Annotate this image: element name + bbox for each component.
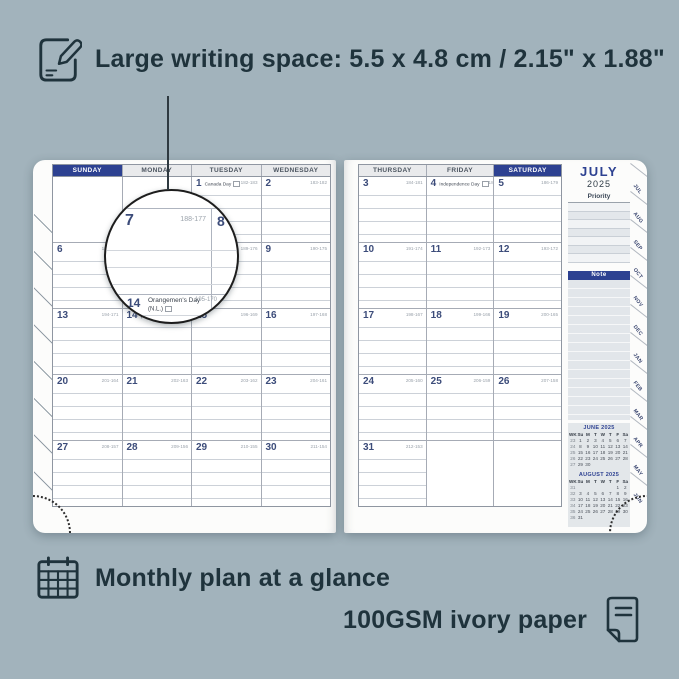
- paper-text: 100GSM ivory paper: [343, 606, 587, 635]
- day-cell-18: 18199-166: [427, 309, 495, 374]
- day-number: 27: [57, 443, 68, 453]
- day-of-year-annotation: 189-176: [241, 246, 258, 251]
- mini-calendar-title: AUGUST 2025: [569, 472, 629, 478]
- priority-line: [568, 229, 630, 238]
- mag-day-number: 7: [125, 212, 134, 230]
- month-tab-apr: APR: [632, 426, 647, 454]
- priority-line: [568, 254, 630, 263]
- week-row: 31212-153: [359, 441, 561, 506]
- day-number: 29: [196, 443, 207, 453]
- priority-line: [568, 220, 630, 229]
- monthly-plan-annotation: Monthly plan at a glance: [36, 556, 390, 600]
- day-cell-21: 21202-163: [123, 375, 193, 440]
- weekday-header-row: SUNDAYMONDAYTUESDAYWEDNESDAY: [53, 165, 330, 177]
- mag-cell-border: [106, 208, 237, 209]
- day-of-year-annotation: 209-156: [171, 444, 188, 449]
- day-of-year-annotation: 191-174: [406, 246, 423, 251]
- empty-day-cell: [427, 441, 495, 506]
- day-cell-23: 23204-161: [262, 375, 331, 440]
- calendar-grid-icon: [36, 556, 80, 600]
- day-cell-3: 3184-181: [359, 177, 427, 242]
- day-cell-16: 16197-168: [262, 309, 331, 374]
- priority-line: [568, 237, 630, 246]
- day-cell-4: 4Independence Day185-180: [427, 177, 495, 242]
- day-number: 21: [127, 377, 138, 387]
- day-number: 22: [196, 377, 207, 387]
- month-tab-jul: JUL: [632, 173, 647, 201]
- day-number: 3: [363, 179, 369, 189]
- mag-day-annotation: 188-177: [158, 216, 206, 223]
- day-number: 5: [498, 179, 504, 189]
- day-cell-13: 13194-171: [53, 309, 123, 374]
- week-row: 27208-15728209-15629210-15530211-154: [53, 441, 330, 506]
- day-number: 23: [266, 377, 277, 387]
- mini-day: [614, 462, 621, 468]
- day-number: 19: [498, 311, 509, 321]
- day-of-year-annotation: 193-172: [541, 246, 558, 251]
- mini-day: [592, 515, 599, 521]
- priority-line: [568, 246, 630, 255]
- right-page: THURSDAYFRIDAYSATURDAY3184-1814Independe…: [344, 160, 647, 533]
- day-cell-11: 11192-173: [427, 243, 495, 308]
- weekday-header-thursday: THURSDAY: [359, 165, 427, 176]
- weekday-header-saturday: SATURDAY: [494, 165, 561, 176]
- day-cell-19: 19200-165: [494, 309, 561, 374]
- day-number: 24: [363, 377, 374, 387]
- weekday-header-tuesday: TUESDAY: [192, 165, 262, 176]
- holiday-label: Independence Day: [439, 181, 488, 187]
- paper-annotation: 100GSM ivory paper: [343, 596, 641, 644]
- mini-calendar-title: JUNE 2025: [569, 425, 629, 431]
- day-of-year-annotation: 199-166: [473, 312, 490, 317]
- day-of-year-annotation: 182-183: [241, 180, 258, 185]
- day-number: 6: [57, 245, 63, 255]
- pencil-note-icon: [36, 34, 82, 84]
- flag-icon: [482, 181, 489, 187]
- priority-label: Priority: [568, 193, 630, 203]
- mini-day: [622, 462, 629, 468]
- mini-day: [584, 515, 591, 521]
- day-number: 11: [431, 245, 442, 255]
- priority-line: [568, 212, 630, 221]
- day-number: 9: [266, 245, 272, 255]
- paper-icon: [601, 596, 641, 644]
- day-cell-9: 9190-175: [262, 243, 331, 308]
- mini-day: [599, 515, 606, 521]
- day-cell-31: 31212-153: [359, 441, 427, 506]
- day-of-year-annotation: 202-163: [171, 378, 188, 383]
- mag-event-day-number: 14: [127, 296, 140, 310]
- week-row: 10191-17411192-17312193-172: [359, 243, 561, 309]
- weekday-header-friday: FRIDAY: [427, 165, 495, 176]
- note-panel: [568, 280, 630, 420]
- day-cell-26: 26207-158: [494, 375, 561, 440]
- month-tab-jan: JAN: [632, 342, 647, 370]
- week-row: 17198-16718199-16619200-165: [359, 309, 561, 375]
- magnifier-circle: 7 188-177 8 14 Orangemen's Day (N.L.) 19…: [104, 189, 239, 324]
- day-cell-5: 5186-179: [494, 177, 561, 242]
- mag-event-title: Orangemen's Day: [148, 297, 200, 304]
- day-cell-28: 28209-156: [123, 441, 193, 506]
- day-of-year-annotation: 205-160: [406, 378, 423, 383]
- day-cell-15: 15196-169: [192, 309, 262, 374]
- mini-day: 29: [577, 462, 584, 468]
- day-number: 17: [363, 311, 374, 321]
- day-number: 20: [57, 377, 68, 387]
- month-tab-feb: FEB: [632, 370, 647, 398]
- mini-day: 30: [584, 462, 591, 468]
- mag-rule-line: [106, 250, 237, 251]
- day-number: 10: [363, 245, 374, 255]
- day-cell-12: 12193-172: [494, 243, 561, 308]
- day-number: 26: [498, 377, 509, 387]
- callout-line: [167, 96, 169, 190]
- sidebar-year: 2025: [568, 179, 630, 189]
- day-of-year-annotation: 201-164: [102, 378, 119, 383]
- month-tab-may: MAY: [632, 454, 647, 482]
- day-of-year-annotation: 200-165: [541, 312, 558, 317]
- mag-cell-border: [106, 294, 237, 295]
- sidebar-month-title: JULY: [568, 165, 630, 179]
- week-row: 24205-16025206-15926207-158: [359, 375, 561, 441]
- mini-day: 31: [577, 515, 584, 521]
- day-cell-17: 17198-167: [359, 309, 427, 374]
- day-cell-30: 30211-154: [262, 441, 331, 506]
- mag-adjacent-day-number: 8: [217, 213, 225, 229]
- mag-rule-line: [106, 284, 237, 285]
- empty-day-cell: [494, 441, 561, 506]
- day-of-year-annotation: 184-181: [406, 180, 423, 185]
- day-number: 12: [498, 245, 509, 255]
- month-tab-nov: NOV: [632, 285, 647, 313]
- mini-calendar-grid: WKSuMTWTFSa23123456724891011121314251516…: [569, 432, 629, 468]
- day-of-year-annotation: 204-161: [310, 378, 327, 383]
- mag-column-border: [211, 208, 212, 322]
- writing-space-text: Large writing space: 5.5 x 4.8 cm / 2.15…: [95, 45, 665, 74]
- mag-event-annotation: 195-170: [195, 297, 217, 303]
- day-number: 2: [266, 179, 272, 189]
- mag-event-subtitle: (N.L.): [148, 306, 172, 313]
- day-of-year-annotation: 198-167: [406, 312, 423, 317]
- day-of-year-annotation: 207-158: [541, 378, 558, 383]
- day-of-year-annotation: 208-157: [102, 444, 119, 449]
- priority-line: [568, 203, 630, 212]
- day-number: 28: [127, 443, 138, 453]
- mini-day: [592, 462, 599, 468]
- day-of-year-annotation: 212-153: [406, 444, 423, 449]
- flag-icon: [165, 306, 172, 312]
- mag-rule-line: [106, 315, 237, 316]
- day-of-year-annotation: 206-159: [473, 378, 490, 383]
- monthly-plan-text: Monthly plan at a glance: [95, 564, 390, 593]
- day-number: 13: [57, 311, 68, 321]
- day-of-year-annotation: 190-175: [310, 246, 327, 251]
- day-number: 1: [196, 179, 202, 189]
- month-tab-mar: MAR: [632, 398, 647, 426]
- day-cell-25: 25206-159: [427, 375, 495, 440]
- month-tab-dec: DEC: [632, 314, 647, 342]
- day-of-year-annotation: 186-179: [541, 180, 558, 185]
- right-calendar-grid: THURSDAYFRIDAYSATURDAY3184-1814Independe…: [358, 164, 562, 507]
- planner-product-image: { "colors":{"background":"#a2b3bc","ink"…: [0, 0, 679, 679]
- day-cell-27: 27208-157: [53, 441, 123, 506]
- day-of-year-annotation: 196-169: [241, 312, 258, 317]
- mini-calendar: JUNE 2025WKSuMTWTFSa23123456724891011121…: [569, 425, 629, 468]
- day-number: 4: [431, 179, 437, 189]
- mini-day: 36: [569, 515, 577, 521]
- day-of-year-annotation: 211-154: [310, 444, 327, 449]
- mini-day: [599, 462, 606, 468]
- mag-rule-line: [106, 267, 237, 268]
- day-cell-10: 10191-174: [359, 243, 427, 308]
- day-cell-20: 20201-164: [53, 375, 123, 440]
- day-number: 18: [431, 311, 442, 321]
- day-cell-29: 29210-155: [192, 441, 262, 506]
- day-of-year-annotation: 203-162: [241, 378, 258, 383]
- mini-day: [607, 462, 614, 468]
- day-number: 30: [266, 443, 277, 453]
- flag-icon: [233, 181, 240, 187]
- day-cell-2: 2183-182: [262, 177, 331, 242]
- weekday-header-row: THURSDAYFRIDAYSATURDAY: [359, 165, 561, 177]
- note-header: Note: [568, 271, 630, 280]
- day-cell-24: 24205-160: [359, 375, 427, 440]
- day-of-year-annotation: 210-155: [241, 444, 258, 449]
- mini-day: 27: [569, 462, 577, 468]
- day-number: 16: [266, 311, 277, 321]
- day-of-year-annotation: 183-182: [310, 180, 327, 185]
- weekday-header-wednesday: WEDNESDAY: [262, 165, 331, 176]
- weekday-header-monday: MONDAY: [123, 165, 193, 176]
- day-cell-22: 22203-162: [192, 375, 262, 440]
- week-row: 3184-1814Independence Day185-1805186-179: [359, 177, 561, 243]
- day-of-year-annotation: 192-173: [473, 246, 490, 251]
- month-sidebar: JULY 2025 Priority Note JUNE 2025WKSuMTW…: [568, 165, 630, 509]
- week-row: 20201-16421202-16322203-16223204-161: [53, 375, 330, 441]
- holiday-label: Canada Day: [205, 181, 241, 187]
- top-annotation: Large writing space: 5.5 x 4.8 cm / 2.15…: [36, 34, 665, 84]
- day-number: 31: [363, 443, 374, 453]
- day-of-year-annotation: 197-168: [310, 312, 327, 317]
- month-tabs-strip: JULAUGSEPOCTNOVDECJANFEBMARAPRMAYJUN: [632, 173, 647, 511]
- weekday-header-sunday: SUNDAY: [53, 165, 123, 176]
- day-number: 25: [431, 377, 442, 387]
- priority-lines: [568, 203, 630, 263]
